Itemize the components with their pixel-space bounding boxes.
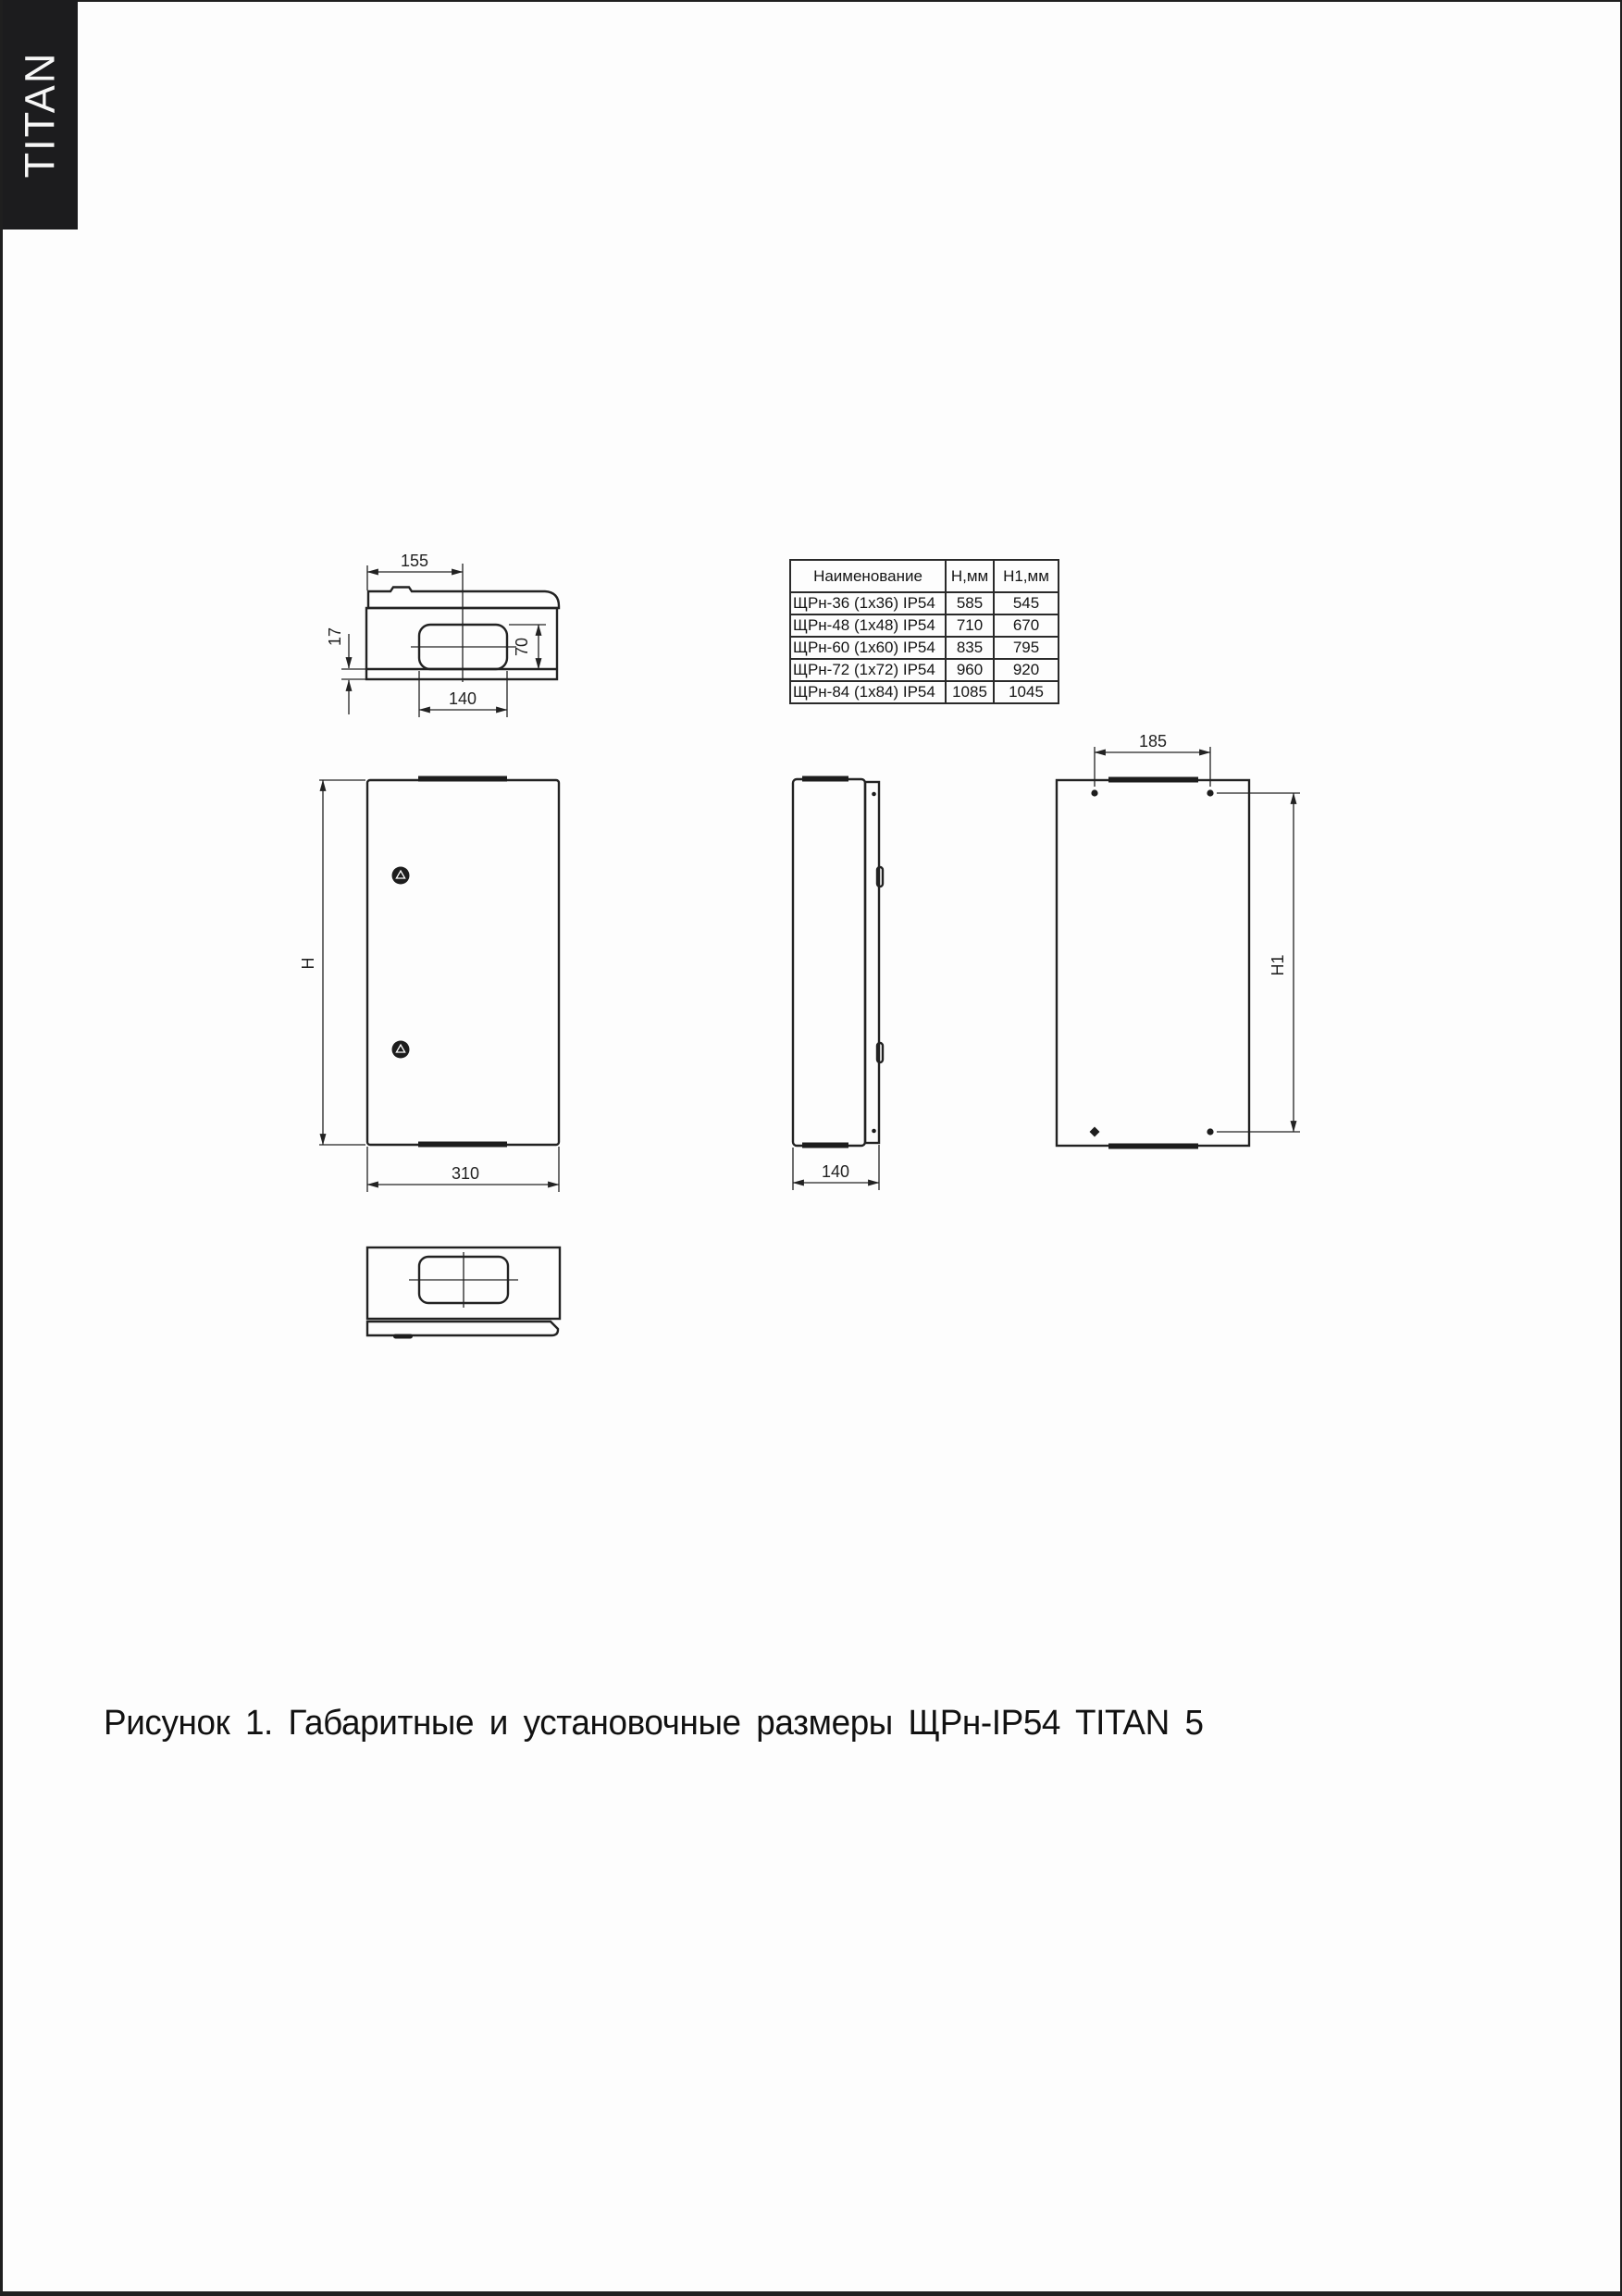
cell-h: 960 [946, 659, 994, 681]
bottom-view-drawing [356, 1240, 578, 1351]
lock-icon [392, 1041, 410, 1059]
top-hinge-strip [418, 776, 507, 782]
titan-banner: TITAN [3, 0, 78, 230]
table-row: ЩРн-48 (1x48) IP54 710 670 [790, 614, 1059, 637]
dim-label-70: 70 [513, 638, 531, 656]
cell-model: ЩРн-84 (1x84) IP54 [790, 681, 946, 703]
cell-h: 710 [946, 614, 994, 637]
enclosure-lid-outline [368, 588, 559, 609]
dim-label-H1: H1 [1269, 954, 1287, 975]
mounting-hole [1207, 789, 1213, 796]
cell-h1: 1045 [994, 681, 1059, 703]
table-row: ЩРн-36 (1x36) IP54 585 545 [790, 592, 1059, 614]
dim-label-310: 310 [452, 1164, 479, 1183]
table-row: ЩРн-84 (1x84) IP54 1085 1045 [790, 681, 1059, 703]
dim-label-185: 185 [1139, 732, 1167, 751]
size-table: Наименование Н,мм Н1,мм ЩРн-36 (1x36) IP… [789, 559, 1059, 704]
mounting-hole [1090, 1127, 1100, 1137]
cell-h: 585 [946, 592, 994, 614]
rear-panel-outline [1057, 780, 1249, 1146]
cell-model: ЩРн-36 (1x36) IP54 [790, 592, 946, 614]
cell-model: ЩРн-48 (1x48) IP54 [790, 614, 946, 637]
cell-h: 1085 [946, 681, 994, 703]
dim-label-140-side: 140 [822, 1162, 849, 1181]
rear-view-drawing: 185 H1 [1046, 726, 1319, 1208]
col-header-name: Наименование [790, 560, 946, 592]
cell-model: ЩРн-60 (1x60) IP54 [790, 637, 946, 659]
door-bottom-edge [367, 1322, 558, 1335]
door-outline [367, 780, 559, 1145]
col-header-h: Н,мм [946, 560, 994, 592]
door-side-outline [793, 779, 865, 1146]
back-panel-outline [865, 782, 879, 1143]
top-hinge-strip [802, 776, 848, 782]
cell-h: 835 [946, 637, 994, 659]
dim-label-155: 155 [401, 552, 428, 570]
front-view-drawing: H 310 [296, 763, 574, 1208]
bottom-edge-strip [1108, 1144, 1198, 1149]
figure-caption: Рисунок 1. Габаритные и установочные раз… [104, 1704, 1204, 1744]
screw-dot [872, 1129, 876, 1134]
mounting-hole [1091, 789, 1097, 796]
table-row: ЩРн-72 (1x72) IP54 960 920 [790, 659, 1059, 681]
table-header-row: Наименование Н,мм Н1,мм [790, 560, 1059, 592]
dim-label-140-top: 140 [449, 689, 477, 708]
cell-h1: 670 [994, 614, 1059, 637]
brand-logo: TITAN [17, 52, 65, 179]
lock-icon [392, 867, 410, 885]
top-view-drawing: 155 17 70 140 [315, 541, 592, 740]
table-row: ЩРн-60 (1x60) IP54 835 795 [790, 637, 1059, 659]
mounting-hole [1207, 1128, 1213, 1135]
bottom-hinge-strip [418, 1142, 507, 1148]
col-header-h1: Н1,мм [994, 560, 1059, 592]
cell-model: ЩРн-72 (1x72) IP54 [790, 659, 946, 681]
side-view-drawing: 140 [773, 763, 953, 1208]
document-page: { "brand": "TITAN", "table": { "headers"… [0, 0, 1622, 2296]
dim-label-H: H [299, 958, 317, 970]
latch-tab [393, 1334, 413, 1339]
screw-dot [872, 792, 876, 797]
top-edge-strip [1108, 777, 1198, 783]
cell-h1: 545 [994, 592, 1059, 614]
cell-h1: 920 [994, 659, 1059, 681]
cell-h1: 795 [994, 637, 1059, 659]
dim-label-17: 17 [326, 627, 344, 646]
bottom-hinge-strip [802, 1143, 848, 1148]
